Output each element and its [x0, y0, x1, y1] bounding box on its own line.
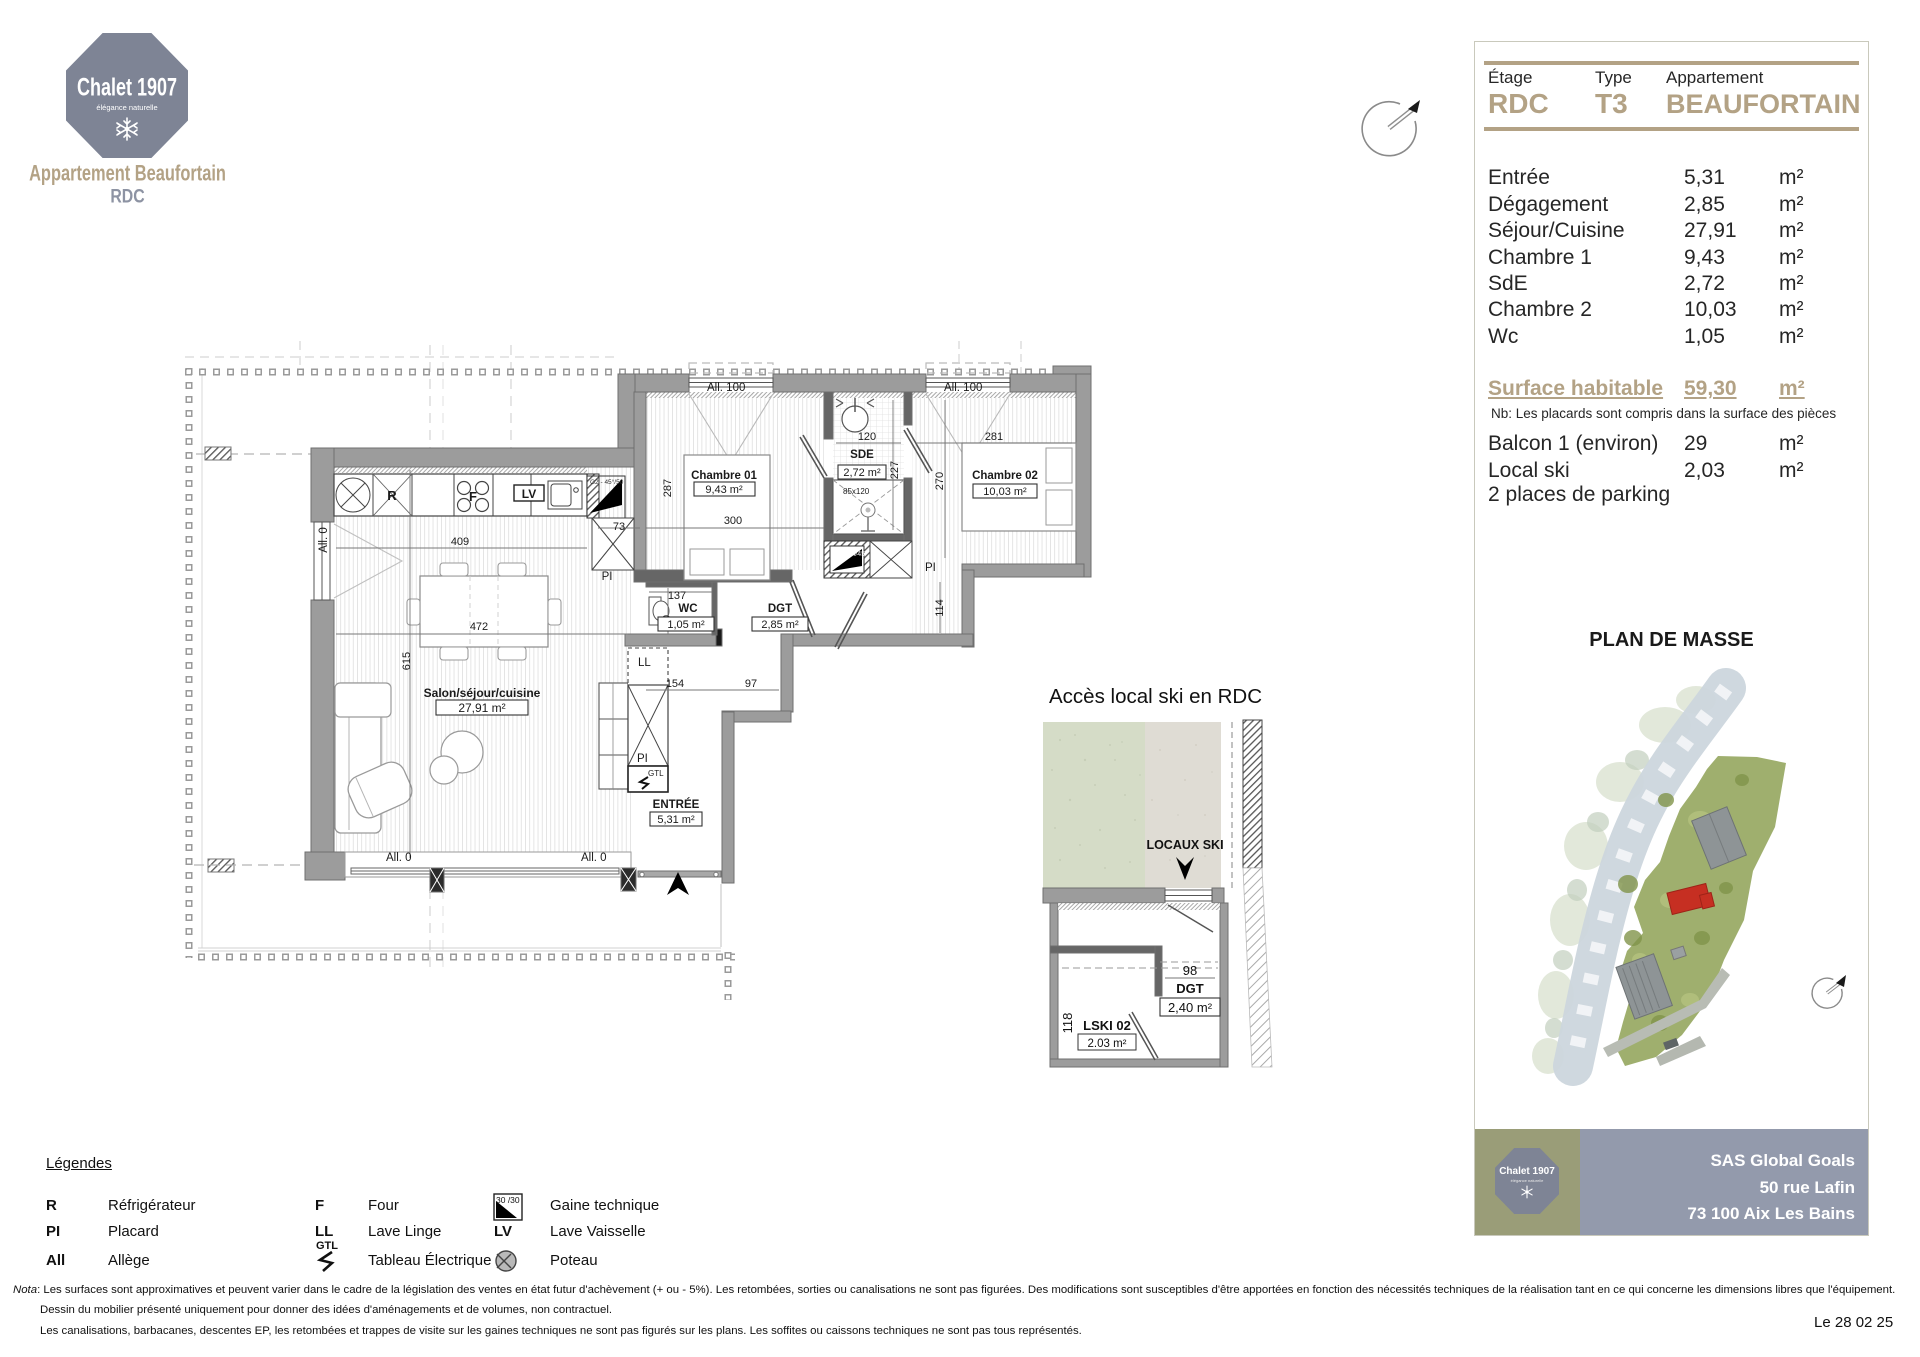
- svg-text:GTL: GTL: [316, 1240, 338, 1252]
- svg-text:30 /30: 30 /30: [496, 1195, 520, 1205]
